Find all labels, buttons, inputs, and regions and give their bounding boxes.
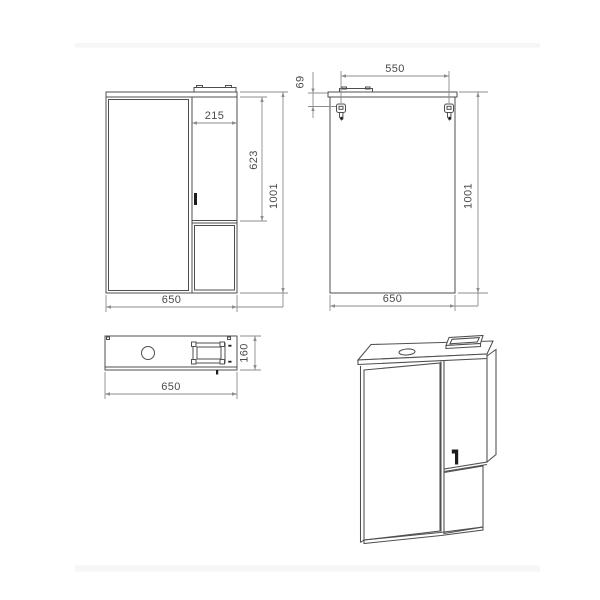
drawing-canvas: 215 623 1001 650	[0, 0, 600, 600]
dimension-top-depth: 160	[239, 336, 262, 370]
dim-label-160: 160	[239, 343, 251, 363]
top-outline	[105, 336, 237, 370]
front-mirror-panel	[109, 100, 189, 291]
dimension-front-door-height: 623	[240, 97, 267, 221]
technical-drawing-svg: 215 623 1001 650	[0, 0, 600, 600]
top-light-fixture	[192, 342, 226, 364]
dim-label-1001-back: 1001	[463, 183, 475, 209]
front-cabinet-outline	[106, 97, 237, 293]
top-scan-band	[75, 43, 540, 48]
persp-light-fixture	[446, 336, 483, 349]
front-door-handle	[194, 193, 197, 205]
front-light-fixture	[194, 86, 236, 93]
dim-label-550: 550	[385, 63, 405, 75]
top-hinge-mark-upper	[228, 345, 231, 347]
front-view: 215 623 1001 650	[106, 86, 288, 313]
top-handle-mark	[216, 370, 218, 375]
hanger-bracket-right	[445, 104, 454, 120]
persp-door	[444, 356, 487, 469]
front-top-board	[106, 92, 237, 97]
front-lower-niche	[195, 226, 235, 291]
top-view: 160 650	[105, 336, 261, 399]
dim-label-623: 623	[248, 150, 260, 170]
top-hole	[142, 347, 155, 360]
back-top-board	[328, 92, 457, 97]
dimension-front-total-width: 650	[106, 294, 283, 312]
back-panel-outline	[330, 97, 455, 293]
hanger-bracket-left	[337, 104, 346, 120]
dim-label-215: 215	[205, 110, 225, 122]
dimension-back-total-width: 650	[330, 293, 478, 311]
top-corner-notch-left	[107, 337, 110, 340]
back-light-fixture	[340, 87, 373, 92]
dim-label-650-front: 650	[162, 294, 182, 306]
back-view: 550 69 1001 650	[295, 63, 489, 311]
dimension-front-door-width: 215	[192, 110, 237, 125]
dimension-front-total-height: 1001	[240, 92, 288, 307]
bottom-scan-band	[75, 566, 540, 572]
persp-lower-panel	[444, 466, 483, 534]
top-corner-notch-right	[228, 337, 231, 340]
dim-label-650-top: 650	[161, 381, 181, 393]
dim-label-69: 69	[295, 75, 307, 88]
persp-mirror-panel	[364, 363, 440, 540]
dim-label-1001-front: 1001	[268, 183, 280, 209]
perspective-view	[358, 336, 496, 544]
top-hinge-mark-lower	[228, 361, 231, 363]
dim-label-650-back: 650	[383, 293, 403, 305]
dimension-back-total-height: 1001	[458, 92, 488, 306]
dimension-top-width: 650	[105, 372, 237, 399]
persp-door-side-face	[487, 350, 496, 463]
